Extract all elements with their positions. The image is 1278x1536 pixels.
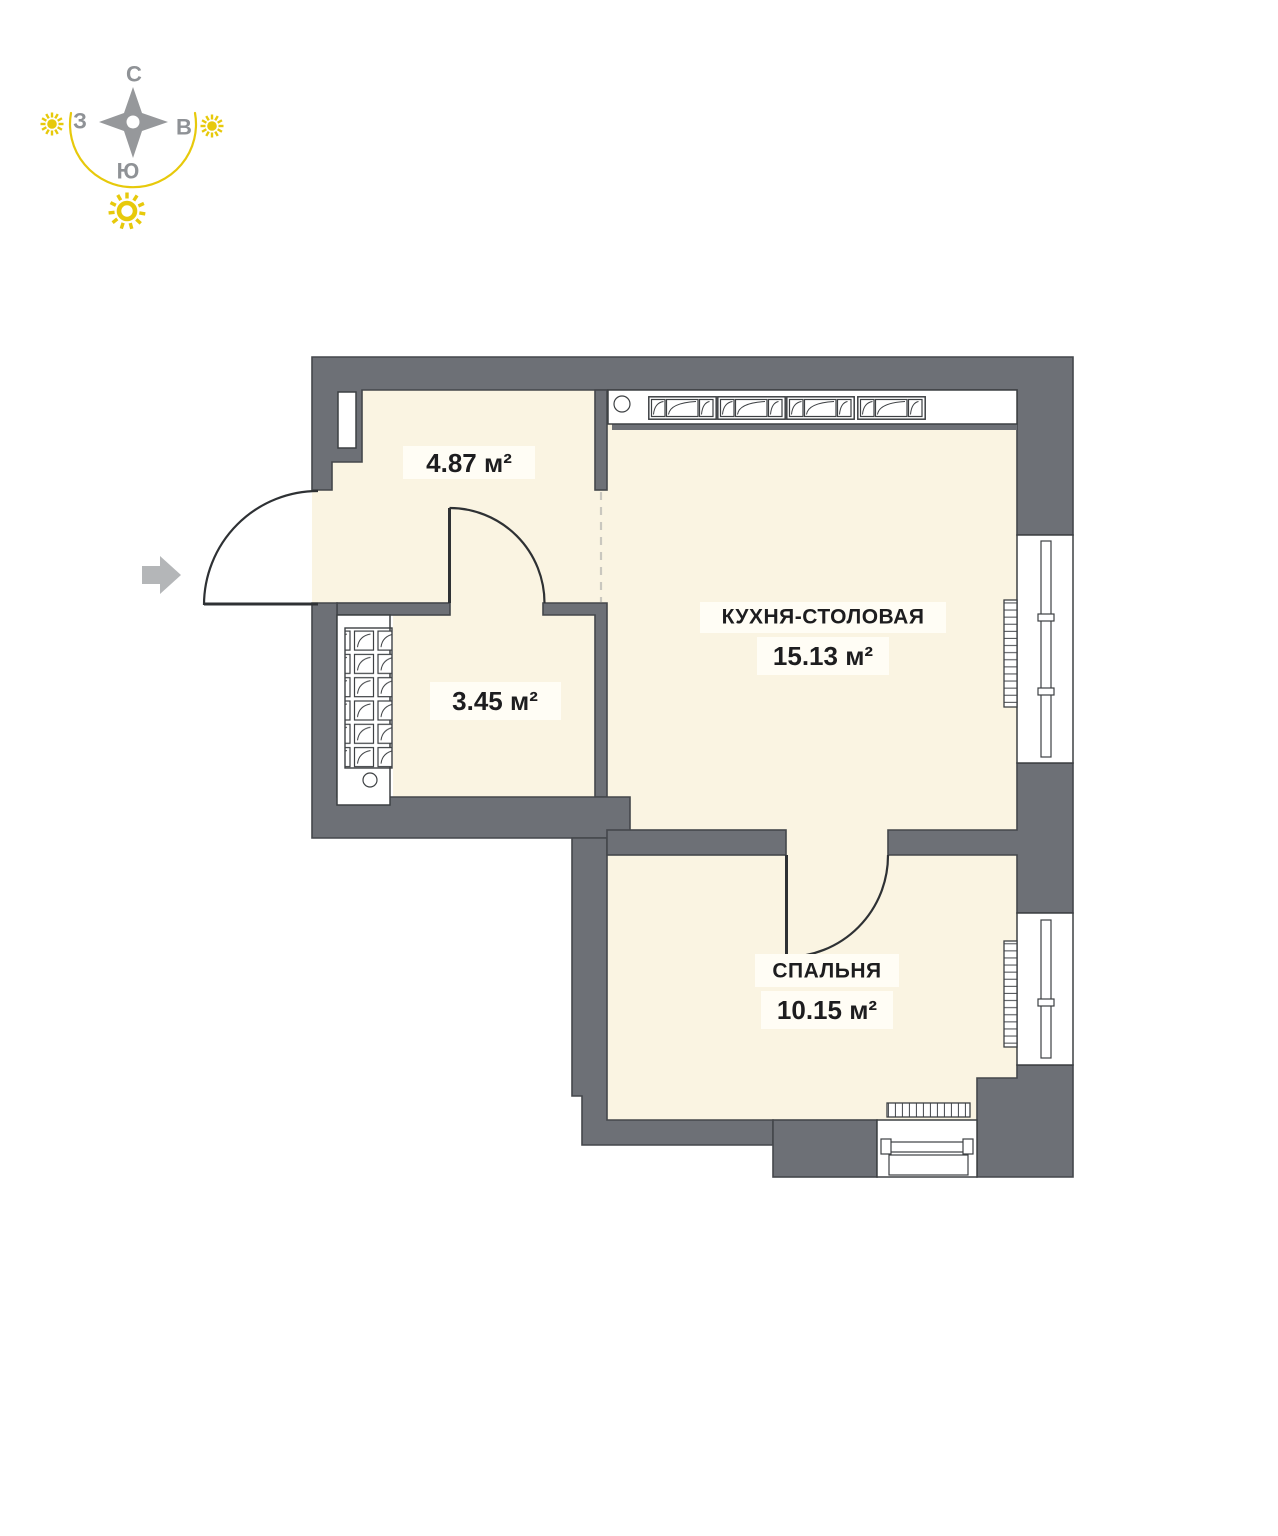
wall-niche: [338, 392, 356, 448]
bottom-window-sill: [889, 1155, 968, 1175]
compass-label-west: З: [73, 109, 87, 134]
kitchen-cabinet-icon: [787, 397, 854, 419]
compass-label-south: Ю: [117, 159, 140, 184]
vent-grille-icon: [345, 628, 392, 768]
kitchen-cabinet-icon: [649, 397, 716, 419]
bathroom-area-label: 3.45 м²: [452, 686, 538, 716]
entry-door-arc: [204, 491, 318, 605]
floors: [312, 390, 1017, 1120]
bottom-window-frame: [884, 1142, 970, 1152]
room-bedroom-floor: [607, 855, 1017, 1120]
kitchen-counter-underline: [612, 424, 1017, 430]
sun-west-icon: [41, 113, 64, 136]
bedroom-window-mullion: [1038, 999, 1054, 1006]
bedroom-bottom-window: [877, 1103, 977, 1177]
bedroom-radiator-icon: [1004, 941, 1017, 1047]
bottom-window-frame-cap: [963, 1139, 973, 1154]
compass-rose: С В Ю З: [41, 62, 224, 230]
bedroom-name-label: СПАЛЬНЯ: [772, 960, 881, 983]
hallway-area-label: 4.87 м²: [426, 448, 512, 478]
bedroom-area-label: 10.15 м²: [777, 995, 878, 1025]
kitchen-counter: [608, 390, 1017, 424]
bottom-window-frame-cap: [881, 1139, 891, 1154]
wall-bedroom-bottom-right: [977, 1065, 1073, 1177]
floor-plan-page: С В Ю З: [0, 0, 1278, 1536]
bathroom-door-opening: [450, 603, 543, 615]
entry-arrow-icon: [142, 556, 181, 594]
compass-label-north: С: [126, 62, 142, 87]
wall-bathroom-top-left: [337, 603, 450, 615]
room-hallway-floor: [332, 390, 607, 603]
bedroom-window-frame: [1041, 920, 1051, 1058]
kitchen-cabinet-icon: [858, 397, 925, 419]
wall-hallway-kitchen-divider: [595, 390, 607, 490]
bedroom-door-opening: [786, 830, 888, 855]
kitchen-area-label: 15.13 м²: [773, 641, 874, 671]
kitchen-window-mullion: [1038, 688, 1054, 695]
sink-icon: [614, 396, 630, 412]
compass-star-center: [127, 116, 140, 129]
kitchen-window-frame: [1041, 541, 1051, 757]
bottom-radiator-icon: [887, 1103, 970, 1117]
sun-east-icon: [201, 115, 224, 138]
compass-label-east: В: [176, 115, 192, 140]
wall-bedroom-bottom-left-of-window: [773, 1120, 877, 1177]
kitchen-window-mullion: [1038, 614, 1054, 621]
floor-plan: С В Ю З: [0, 0, 1278, 1536]
vent-shaft: [337, 615, 392, 805]
kitchen-cabinet-icon: [718, 397, 785, 419]
kitchen-radiator-icon: [1004, 600, 1017, 707]
vent-hole-icon: [363, 773, 377, 787]
sun-south-icon: [108, 193, 145, 230]
kitchen-name-label: КУХНЯ-СТОЛОВАЯ: [722, 606, 925, 629]
entry-opening: [312, 490, 332, 604]
wall-kitchen-bedroom-left: [607, 830, 786, 855]
